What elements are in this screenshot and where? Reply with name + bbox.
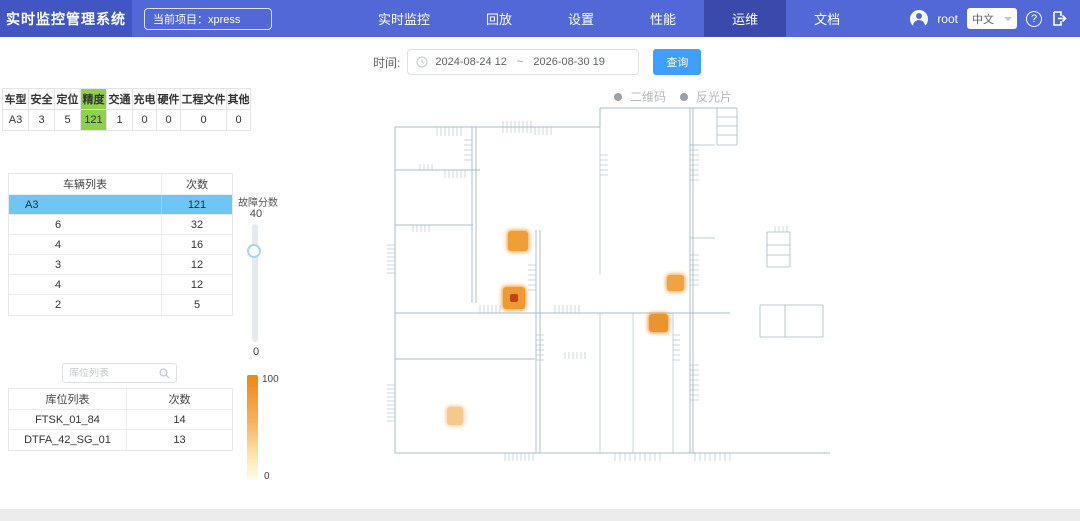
topbar-right: root 中文 ? — [910, 8, 1080, 29]
heat-marker[interactable] — [649, 314, 668, 332]
heat-marker-core — [510, 294, 518, 302]
heat-marker[interactable] — [447, 407, 463, 425]
stats-value: 3 — [29, 110, 55, 131]
main-nav: 实时监控回放设置性能运维文档 — [350, 0, 868, 37]
storage-table: 库位列表次数FTSK_01_8414DTFA_42_SG_0113 — [8, 388, 233, 451]
fault-score-min: 0 — [248, 346, 264, 358]
vehicle-count: 121 — [162, 195, 232, 214]
vehicle-row[interactable]: 416 — [9, 235, 232, 255]
current-project-box[interactable]: 当前项目：xpress — [144, 8, 272, 30]
category-stats-table: 车型安全定位精度交通充电硬件工程文件其他A33512110000 — [2, 88, 251, 131]
vehicle-table: 车辆列表次数A312163241631241225 — [8, 173, 233, 316]
storage-search-input[interactable] — [69, 368, 159, 379]
vehicle-row[interactable]: 412 — [9, 275, 232, 295]
heat-gradient-bar — [247, 375, 258, 480]
date-start[interactable]: 2024-08-24 12 — [435, 56, 507, 68]
stats-value: 0 — [227, 110, 251, 131]
date-separator: ~ — [517, 56, 523, 68]
storage-row[interactable]: FTSK_01_8414 — [9, 410, 232, 430]
storage-name: FTSK_01_84 — [9, 410, 127, 429]
vehicle-row[interactable]: A3121 — [9, 195, 232, 215]
stats-value: 5 — [55, 110, 81, 131]
vehicle-row[interactable]: 312 — [9, 255, 232, 275]
nav-item-性能[interactable]: 性能 — [622, 0, 704, 37]
stats-value: 121 — [81, 110, 107, 131]
nav-item-回放[interactable]: 回放 — [458, 0, 540, 37]
language-select[interactable]: 中文 — [967, 8, 1017, 29]
vehicle-name: A3 — [9, 195, 162, 214]
stats-value: 0 — [181, 110, 227, 131]
vehicle-table-header: 车辆列表 — [9, 174, 162, 194]
stats-col-header[interactable]: 安全 — [29, 89, 55, 110]
vehicle-name: 4 — [9, 275, 162, 294]
search-icon[interactable] — [159, 368, 170, 379]
stats-col-header[interactable]: 充电 — [133, 89, 157, 110]
bottom-strip — [0, 509, 1080, 521]
stats-value: 0 — [133, 110, 157, 131]
storage-table-header: 库位列表 — [9, 389, 127, 409]
vehicle-name: 3 — [9, 255, 162, 274]
time-label: 时间: — [373, 54, 400, 71]
query-button[interactable]: 查询 — [653, 49, 701, 75]
stats-col-header[interactable]: 车型 — [3, 89, 29, 110]
fault-score-label: 故障分数 — [238, 194, 278, 209]
stats-col-header[interactable]: 精度 — [81, 89, 107, 110]
vehicle-count: 16 — [162, 235, 232, 254]
logout-icon[interactable] — [1051, 10, 1068, 27]
heat-marker[interactable] — [503, 287, 525, 309]
fault-score-slider-handle[interactable] — [247, 244, 261, 258]
stats-col-header[interactable]: 其他 — [227, 89, 251, 110]
vehicle-count: 32 — [162, 215, 232, 234]
help-icon[interactable]: ? — [1026, 11, 1042, 27]
vehicle-count: 12 — [162, 275, 232, 294]
nav-item-运维[interactable]: 运维 — [704, 0, 786, 37]
chevron-down-icon — [1004, 17, 1012, 21]
time-filter-row: 时间: 2024-08-24 12 ~ 2026-08-30 19 查询 — [373, 49, 701, 75]
vehicle-name: 2 — [9, 295, 162, 315]
stats-col-header[interactable]: 硬件 — [157, 89, 181, 110]
vehicle-row[interactable]: 25 — [9, 295, 232, 315]
username: root — [937, 12, 958, 26]
storage-table-header-row: 库位列表次数 — [9, 389, 232, 410]
top-navbar: 实时监控管理系统 当前项目：xpress 实时监控回放设置性能运维文档 root… — [0, 0, 1080, 37]
language-value: 中文 — [972, 11, 994, 27]
clock-icon — [416, 56, 428, 68]
nav-item-设置[interactable]: 设置 — [540, 0, 622, 37]
stats-col-header[interactable]: 工程文件 — [181, 89, 227, 110]
nav-item-文档[interactable]: 文档 — [786, 0, 868, 37]
date-end[interactable]: 2026-08-30 19 — [533, 56, 605, 68]
fault-score-slider[interactable] — [252, 224, 258, 342]
user-avatar-icon[interactable] — [910, 10, 928, 28]
vehicle-count: 12 — [162, 255, 232, 274]
stats-value: 0 — [157, 110, 181, 131]
heat-gradient-min: 0 — [264, 471, 270, 482]
stats-col-header[interactable]: 交通 — [107, 89, 133, 110]
stats-value: A3 — [3, 110, 29, 131]
count-header: 次数 — [162, 174, 232, 194]
count-header: 次数 — [127, 389, 232, 409]
storage-row[interactable]: DTFA_42_SG_0113 — [9, 430, 232, 450]
date-range-picker[interactable]: 2024-08-24 12 ~ 2026-08-30 19 — [407, 49, 639, 75]
storage-name: DTFA_42_SG_01 — [9, 430, 127, 450]
storage-count: 13 — [127, 430, 232, 450]
app-page: 实时监控管理系统 当前项目：xpress 实时监控回放设置性能运维文档 root… — [0, 0, 1080, 521]
app-title: 实时监控管理系统 — [0, 0, 132, 37]
vehicle-row[interactable]: 632 — [9, 215, 232, 235]
vehicle-count: 5 — [162, 295, 232, 315]
stats-col-header[interactable]: 定位 — [55, 89, 81, 110]
vehicle-name: 4 — [9, 235, 162, 254]
vehicle-table-header-row: 车辆列表次数 — [9, 174, 232, 195]
warehouse-floorplan — [385, 85, 860, 485]
map-area[interactable] — [385, 85, 860, 485]
storage-search-box — [62, 363, 177, 383]
heat-gradient-max: 100 — [262, 374, 279, 385]
storage-count: 14 — [127, 410, 232, 429]
heat-marker[interactable] — [667, 275, 684, 291]
heat-marker[interactable] — [508, 231, 528, 251]
stats-value: 1 — [107, 110, 133, 131]
fault-score-max: 40 — [248, 208, 264, 220]
vehicle-name: 6 — [9, 215, 162, 234]
nav-item-实时监控[interactable]: 实时监控 — [350, 0, 458, 37]
